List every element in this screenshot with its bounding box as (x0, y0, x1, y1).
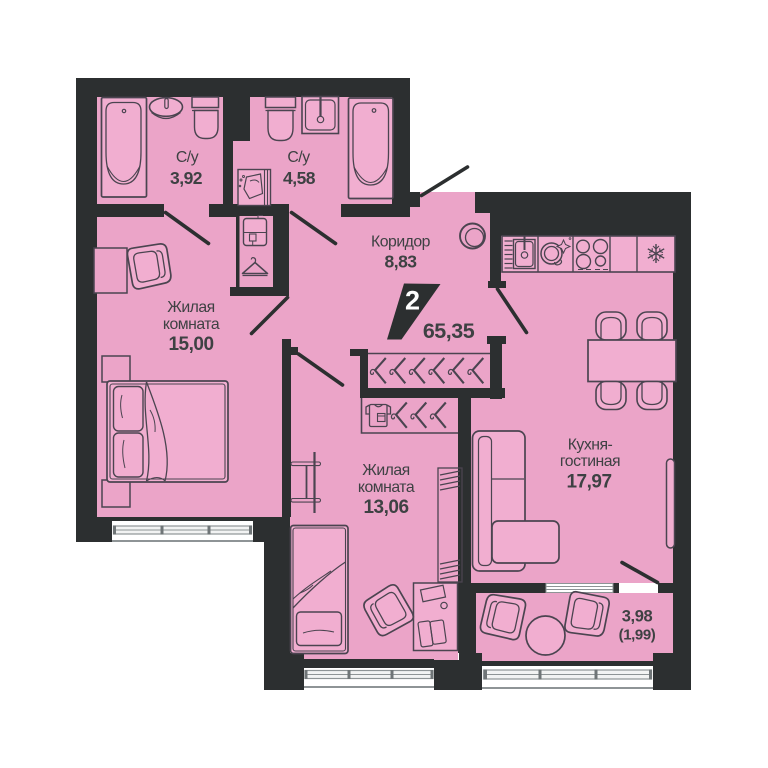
svg-text:Коридор: Коридор (371, 234, 431, 251)
svg-text:4,58: 4,58 (283, 168, 316, 188)
svg-text:С/у: С/у (176, 149, 199, 166)
svg-text:комната: комната (163, 316, 220, 333)
svg-text:Кухня-: Кухня- (568, 437, 613, 454)
svg-text:3,92: 3,92 (170, 168, 203, 188)
svg-text:3,98: 3,98 (622, 608, 653, 626)
svg-text:2: 2 (405, 286, 420, 316)
svg-text:гостиная: гостиная (560, 453, 620, 470)
svg-text:С/у: С/у (287, 149, 310, 166)
svg-text:15,00: 15,00 (168, 334, 213, 355)
svg-text:17,97: 17,97 (566, 472, 611, 493)
svg-text:комната: комната (358, 479, 415, 496)
svg-text:13,06: 13,06 (363, 497, 408, 518)
svg-text:65,35: 65,35 (423, 319, 475, 343)
svg-text:Жилая: Жилая (167, 299, 214, 316)
svg-text:Жилая: Жилая (362, 462, 409, 479)
svg-text:8,83: 8,83 (384, 252, 417, 272)
svg-text:(1,99): (1,99) (619, 627, 656, 644)
